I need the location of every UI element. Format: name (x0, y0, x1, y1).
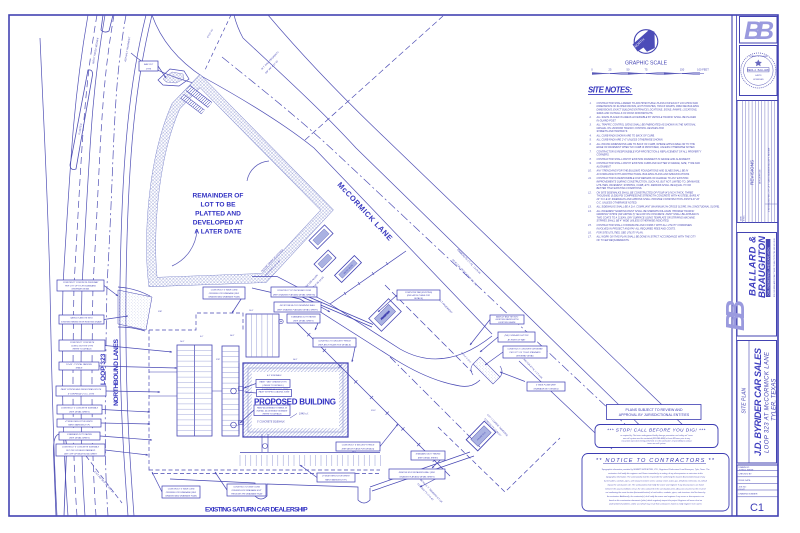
svg-text:impact the construction site.: impact the construction site. The contra… (607, 483, 704, 486)
svg-text:CONSTRUCT CONCRETE: CONSTRUCT CONCRETE (70, 342, 95, 344)
svg-text:** NOTICE TO CONTRACTORS: ** NOTICE TO CONTRACTORS ** (596, 458, 715, 464)
svg-text:CURB & GUTTER (TYP): CURB & GUTTER (TYP) (71, 345, 93, 347)
svg-text:OPENING FOR DRAINAGE EXIT: OPENING FOR DRAINAGE EXIT (231, 489, 262, 492)
svg-text:(REF. DETAIL SHEET): (REF. DETAIL SHEET) (69, 437, 90, 440)
svg-text:REMOVE 8120 RETAINING WALL (RE: REMOVE 8120 RETAINING WALL (REF. (399, 471, 436, 474)
svg-text:Topographic information provid: Topographic information provided by SUMM… (602, 468, 710, 471)
svg-text:(REF. GRADING PLAN AND DETAIL: (REF. GRADING PLAN AND DETAIL SHEET) (277, 308, 318, 311)
svg-text:ISSUE DATE:: ISSUE DATE: (739, 479, 752, 482)
svg-text:topographic information. The: topographic information. The contractor(… (606, 476, 706, 479)
svg-text:DRAWING NUMBER:: DRAWING NUMBER: (739, 492, 759, 495)
svg-text:24.0': 24.0' (229, 334, 235, 337)
svg-text:5' WIDE FLUME (REF.: 5' WIDE FLUME (REF. (536, 385, 557, 387)
svg-text:excavation operations being pe: excavation operations being performed. i… (621, 439, 692, 442)
svg-text:EXISTING PAVING WITH: EXISTING PAVING WITH (496, 318, 519, 321)
svg-text:C1: C1 (750, 502, 764, 514)
svg-text:REVISIONS: REVISIONS (750, 160, 755, 185)
svg-text:CONSTRUCT 18" RECESSED CURB: CONSTRUCT 18" RECESSED CURB (277, 290, 311, 292)
svg-text:CORNERS.: CORNERS. (597, 154, 610, 157)
svg-text:A LATER DATE: A LATER DATE (194, 229, 242, 236)
svg-text:CONSTRUCT 6' WIDE CURB: CONSTRUCT 6' WIDE CURB (211, 289, 238, 291)
svg-text:DRIVEWAY DETAIL: DRIVEWAY DETAIL (72, 288, 90, 291)
svg-text:NORTHBOUND LANES: NORTHBOUND LANES (113, 339, 120, 406)
svg-text:4" STRIPES AT 2' O.C. (TYP): 4" STRIPES AT 2' O.C. (TYP) (68, 392, 95, 395)
svg-text:ALL CURB RADII ARE 2'-0" UNLES: ALL CURB RADII ARE 2'-0" UNLESS OTHERWIS… (596, 139, 664, 142)
svg-text:AT RIGHT OF WAY: AT RIGHT OF WAY (507, 338, 526, 341)
svg-text:JOHN A. WEISE: JOHN A. WEISE (739, 468, 754, 471)
svg-text:CONSTRUCT 5' CONCRETE SIDEWALK: CONSTRUCT 5' CONCRETE SIDEWALK (61, 407, 99, 410)
svg-text:(REF. DETAIL SHEET): (REF. DETAIL SHEET) (69, 411, 90, 414)
svg-text:(REF. DETAIL SHEET): (REF. DETAIL SHEET) (418, 457, 439, 460)
svg-text:PLANS SUBJECT TO REVIEW AND: PLANS SUBJECT TO REVIEW AND (626, 408, 683, 412)
svg-text:STANDARD DUTY PAVING: STANDARD DUTY PAVING (416, 453, 441, 456)
svg-text:CIVIL ENGINEERING LANDSCAPE A: CIVIL ENGINEERING LANDSCAPE ARCH. (767, 247, 770, 296)
svg-text:underwritted of problems and/o: underwritted of problems and/or cost whi… (609, 503, 703, 506)
svg-text:FOR SITE UTILITIES, SEE UTILIT: FOR SITE UTILITIES, SEE UTILITY PLAN. (597, 232, 644, 235)
svg-text:EXISTING GRADE: EXISTING GRADE (498, 321, 516, 324)
svg-text:ALL CURB RADII SHOWN ARE TO BA: ALL CURB RADII SHOWN ARE TO BACK OF CURB… (596, 134, 656, 137)
svg-text:10.: 10. (588, 170, 592, 173)
svg-text:EXISTING SATURN CAR DEALERSHIP: EXISTING SATURN CAR DEALERSHIP (205, 507, 308, 514)
svg-text:STRIPES SHALL BE 4" WIDE UNLES: STRIPES SHALL BE 4" WIDE UNLESS OTHERWIS… (597, 220, 670, 223)
svg-text:1940 s.f.: 1940 s.f. (299, 413, 309, 416)
svg-text:4" WIDE REFLECTIVE WHITE: 4" WIDE REFLECTIVE WHITE (322, 475, 350, 478)
svg-text:DRIVEWAY DETAIL: DRIVEWAY DETAIL (516, 355, 534, 358)
svg-text:CONSTRUCT 6' CONCRETE SIDEWALK: CONSTRUCT 6' CONCRETE SIDEWALK (62, 445, 100, 448)
svg-text:( REFER TO DETAILS ): ( REFER TO DETAILS ) (262, 384, 284, 387)
svg-text:STATE OF TEXAS: STATE OF TEXAS (749, 55, 768, 58)
svg-text:INVOLVED IN PROJECT AND PAY AL: INVOLVED IN PROJECT AND PAY ALL REQUIRED… (597, 227, 677, 230)
svg-text:THROUGH THE DRAINAGE PLAN: THROUGH THE DRAINAGE PLAN (231, 493, 263, 496)
svg-text:6.: 6. (589, 143, 591, 146)
svg-text:ALL SIDEWALKS SHALL BE A.D.A.: ALL SIDEWALKS SHALL BE A.D.A. COMPLIANT … (596, 206, 721, 209)
svg-text:PER CITY OF TYLER STANDARD: PER CITY OF TYLER STANDARD (65, 284, 96, 287)
svg-text:12.: 12. (588, 191, 592, 194)
svg-text:CONTRACTOR IS RESPONSIBLE FOR: CONTRACTOR IS RESPONSIBLE FOR PROTECTION… (597, 150, 702, 153)
svg-text:TYLER, TEXAS: TYLER, TEXAS (771, 379, 777, 421)
svg-text:64879: 64879 (755, 75, 762, 77)
svg-text:LOOP 323 AT McCORMICK LANE: LOOP 323 AT McCORMICK LANE (765, 351, 771, 453)
svg-text:8/7/03: 8/7/03 (744, 216, 746, 221)
svg-text:819 OLD BULLARD ROAD TYLER, TE: 819 OLD BULLARD ROAD TYLER, TEXAS 75703 … (773, 238, 776, 297)
svg-text:PAINT MARKING (TYP.): PAINT MARKING (TYP.) (325, 479, 347, 482)
svg-text:(TYP): (TYP) (146, 68, 152, 70)
svg-text:CONSTRUCT CONCRETE DRIVEWAY: CONSTRUCT CONCRETE DRIVEWAY (507, 347, 543, 350)
svg-text:LOT TO BE: LOT TO BE (200, 202, 236, 209)
svg-text:ACCORDANCE WITH ARCHITECTURAL: ACCORDANCE WITH ARCHITECTURAL BUILDING P… (596, 173, 691, 176)
svg-text:SPACE: SPACE (76, 367, 83, 370)
svg-text:J.D. BYRIDER CAR SALES: J.D. BYRIDER CAR SALES (753, 347, 763, 456)
svg-text:150: 150 (680, 68, 685, 72)
svg-text:CONSTRUCT 4' WIDE CURB: CONSTRUCT 4' WIDE CURB (233, 485, 260, 488)
svg-text:KEYSTONE BLOCK RETAINING WALL: KEYSTONE BLOCK RETAINING WALL (280, 304, 315, 307)
svg-text:4" WIDE REFLECTIVE WHITE: 4" WIDE REFLECTIVE WHITE (65, 420, 93, 423)
svg-text:R10': R10' (216, 359, 221, 361)
svg-text:7.: 7. (589, 150, 591, 153)
svg-text:GRADING AND DRAINAGE PLAN): GRADING AND DRAINAGE PLAN) (208, 296, 240, 299)
svg-text:SIZES AND OUTFALLS OF ROOF DOW: SIZES AND OUTFALLS OF ROOF DOWNSPOUTS. (597, 112, 654, 115)
svg-text:EDGE OF PAVEMENT WHEN NO CURB: EDGE OF PAVEMENT WHEN NO CURB IS PROPOSE… (597, 146, 696, 149)
svg-text:2.: 2. (588, 116, 591, 119)
svg-text:03-042: 03-042 (739, 489, 746, 491)
svg-text:EXISTING PAVING WITH EXISTING: EXISTING PAVING WITH EXISTING GRADE (61, 321, 102, 324)
svg-text:CONSTRUCT CONCRETE DRIVEWAY: CONSTRUCT CONCRETE DRIVEWAY (63, 281, 99, 284)
svg-text:CHECKED BY:: CHECKED BY: (739, 474, 753, 476)
svg-text:13.: 13. (588, 206, 592, 209)
svg-text:not confirming the exact locat: not confirming the exact location (horiz… (606, 491, 707, 494)
svg-text:GRADING AND DRAINAGE PLAN): GRADING AND DRAINAGE PLAN) (165, 495, 197, 498)
svg-text:4.0' SIDEWALK: 4.0' SIDEWALK (267, 374, 282, 377)
svg-text:STANDARD DUTY PAVING: STANDARD DUTY PAVING (67, 433, 92, 436)
svg-text:ALIGNMENT.: ALIGNMENT. (596, 165, 612, 168)
svg-text:OF TYLER REQUIREMENTS.: OF TYLER REQUIREMENTS. (597, 239, 630, 242)
svg-text:SAWCUT AND TIE INTO: SAWCUT AND TIE INTO (70, 317, 93, 320)
svg-text:INSTALL ACCESSIBLE SIGNAGE: INSTALL ACCESSIBLE SIGNAGE (257, 409, 288, 412)
svg-text:STANDARD DUTY PAVING: STANDARD DUTY PAVING (291, 316, 316, 319)
svg-text:DEVELOPED AT: DEVELOPED AT (193, 220, 244, 227)
svg-text:PLATTED AND: PLATTED AND (195, 211, 241, 218)
svg-text:DESCRIPTION: DESCRIPTION (760, 169, 762, 184)
svg-text:16.: 16. (588, 232, 592, 235)
svg-text:BEDL A. BALLARD: BEDL A. BALLARD (747, 68, 769, 72)
svg-text:COMPUTER PAD (EXISTING): COMPUTER PAD (EXISTING) (405, 291, 433, 294)
svg-text:LOOP 323: LOOP 323 (100, 353, 107, 385)
svg-text:(REF. ARCH PLANS FOR: (REF. ARCH PLANS FOR (407, 294, 431, 297)
svg-text:GRADING PLAN AND DETAIL SHEET): GRADING PLAN AND DETAIL SHEET) (399, 475, 434, 478)
svg-text:8.: 8. (589, 158, 591, 161)
svg-text:BETTER THAN EXISTING CONDITION: BETTER THAN EXISTING CONDITIONS. (597, 187, 643, 190)
svg-text:texas one call system: texas one call system (647, 442, 665, 445)
svg-text:R3.0': R3.0' (371, 410, 376, 412)
svg-text:LICENSED: LICENSED (753, 79, 764, 81)
svg-text:*** STOP! CALL BEFORE YOU: *** STOP! CALL BEFORE YOU DIG! *** (607, 428, 706, 433)
svg-text:BB: BB (720, 300, 750, 331)
svg-text:R30': R30' (158, 311, 163, 313)
svg-text:DATE: DATE (740, 215, 743, 221)
svg-text:DETAILS): DETAILS) (414, 297, 423, 300)
svg-text:OPENING FOR DRAINAGE (REF.: OPENING FOR DRAINAGE (REF. (166, 491, 197, 494)
svg-text:10'x20' - TYPICAL PARKING: 10'x20' - TYPICAL PARKING (66, 363, 92, 366)
svg-text:PAINT MARKING (TYP): PAINT MARKING (TYP) (68, 424, 90, 427)
svg-text:CONTRACTOR SHALL MATCH EXISTIN: CONTRACTOR SHALL MATCH EXISTING CURB AND… (597, 162, 701, 165)
svg-text:(NE) CURB AND GUTTER: (NE) CURB AND GUTTER (505, 334, 529, 337)
svg-text:contractor shall notify the en: contractor shall notify the engineer and… (608, 472, 703, 475)
svg-text:PAINT "TAXI" CHARGE (TYP): PAINT "TAXI" CHARGE (TYP) (260, 381, 287, 384)
svg-text:between the actual conditions: between the actual conditions versus the… (605, 487, 706, 490)
svg-text:BB: BB (744, 17, 774, 45)
svg-text:4" STRIPES AT 2' O.C. (TYP.): 4" STRIPES AT 2' O.C. (TYP.) (262, 388, 289, 391)
svg-text:one call system must be contac: one call system must be contacted (800-2… (623, 437, 691, 440)
svg-text:14.0': 14.0' (180, 340, 185, 343)
svg-text:REMAINDER OF: REMAINDER OF (193, 193, 244, 200)
svg-text:(REF. DETAIL SHEET): (REF. DETAIL SHEET) (293, 320, 314, 323)
svg-text:(REF. GRADING PLAN AND DETAIL: (REF. GRADING PLAN AND DETAIL SHEETS) (273, 293, 315, 296)
svg-text:CONTRACTOR SHALL MATCH EXISTIN: CONTRACTOR SHALL MATCH EXISTING PAVEMENT… (597, 158, 691, 161)
svg-text:11.: 11. (588, 177, 592, 180)
svg-text:9.: 9. (589, 162, 591, 165)
svg-text:REFER TO DETAILS: REFER TO DETAILS (73, 348, 92, 351)
svg-text:IN GUARD POST.: IN GUARD POST. (597, 119, 617, 122)
svg-text:(REF. ARCH PLANS FOR DETAILS): (REF. ARCH PLANS FOR DETAILS) (342, 448, 375, 451)
svg-text:OPENING FOR DRAINAGE (REF.: OPENING FOR DRAINAGE (REF. (209, 292, 240, 295)
svg-text:14.: 14. (588, 210, 592, 213)
svg-text:CONSTRUCT 6' WIDE CURB: CONSTRUCT 6' WIDE CURB (168, 488, 195, 490)
svg-text:GRAPHIC SCALE: GRAPHIC SCALE (625, 61, 668, 67)
svg-text:CONSTRUCT 6' SECURITY FENCE: CONSTRUCT 6' SECURITY FENCE (342, 445, 375, 447)
svg-text:SAW CUT: SAW CUT (144, 63, 154, 66)
svg-text:SAWCUT AND TIE INTO: SAWCUT AND TIE INTO (496, 316, 519, 319)
svg-text:16.0': 16.0' (249, 310, 254, 312)
svg-text:APPROVAL BY JURISDICTIONAL ENT: APPROVAL BY JURISDICTIONAL ENTITIES (619, 413, 690, 417)
svg-text:DRAINAGE DET. DETAILS): DRAINAGE DET. DETAILS) (534, 388, 559, 391)
svg-text:PAINT STRIPES AND PEDESTRIAN R: PAINT STRIPES AND PEDESTRIAN ROUTE (61, 388, 102, 391)
svg-text:1.: 1. (589, 102, 591, 105)
svg-text:PAINT ACCESSIBLE SYMBOL IN: PAINT ACCESSIBLE SYMBOL IN (257, 406, 288, 409)
svg-text:3.: 3. (589, 124, 591, 127)
svg-text:100 FEET: 100 FEET (697, 68, 709, 72)
svg-text:SITE NOTES:: SITE NOTES: (588, 86, 632, 95)
svg-text:5' CONCRETE SIDEWALK: 5' CONCRETE SIDEWALK (257, 421, 285, 424)
svg-text:OUT OFF OF PALM STANDARD: OUT OFF OF PALM STANDARD (66, 449, 96, 452)
svg-text:PER CITY OF TYLER STANDARD: PER CITY OF TYLER STANDARD (510, 351, 541, 354)
svg-text:as required by The texas under: as required by The texas underground fac… (620, 434, 693, 437)
svg-text:5.: 5. (589, 139, 591, 142)
svg-text:24.0': 24.0' (292, 358, 298, 361)
svg-text:STREETS AND HIGHWAYS.: STREETS AND HIGHWAYS. (597, 130, 629, 133)
svg-text:SITE PLAN: SITE PLAN (742, 388, 748, 414)
svg-text:buried cables, conduits, pipes: buried cables, conduits, pipes, and stru… (604, 480, 707, 483)
svg-text:DWY. OFF OF PALM ROYAL SHEET: DWY. OFF OF PALM ROYAL SHEET (64, 453, 98, 456)
svg-text:1 REVISIONS PER CITY OF TYLE: 1 REVISIONS PER CITY OF TYLER ENGINEERIN… (769, 148, 771, 212)
svg-text:the contractor. Additionally,: the contractor. Additionally, the contra… (607, 495, 704, 498)
svg-text:(REF. ARCH PLANS FOR DETAILS): (REF. ARCH PLANS FOR DETAILS) (318, 344, 351, 347)
svg-text:15.: 15. (588, 224, 592, 227)
svg-text:O.C. UNLESS OTHERWISE NOTED.: O.C. UNLESS OTHERWISE NOTED. (597, 201, 638, 204)
svg-text:CONSTRUCT 6' SECURITY FENCE: CONSTRUCT 6' SECURITY FENCE (318, 341, 351, 343)
svg-text:REFER TO DETAILS: REFER TO DETAILS (263, 413, 282, 416)
svg-text:4.: 4. (589, 134, 591, 137)
svg-text:found on the construction docu: found on the construction documents (pla… (609, 499, 703, 502)
svg-text:17.: 17. (588, 236, 592, 239)
